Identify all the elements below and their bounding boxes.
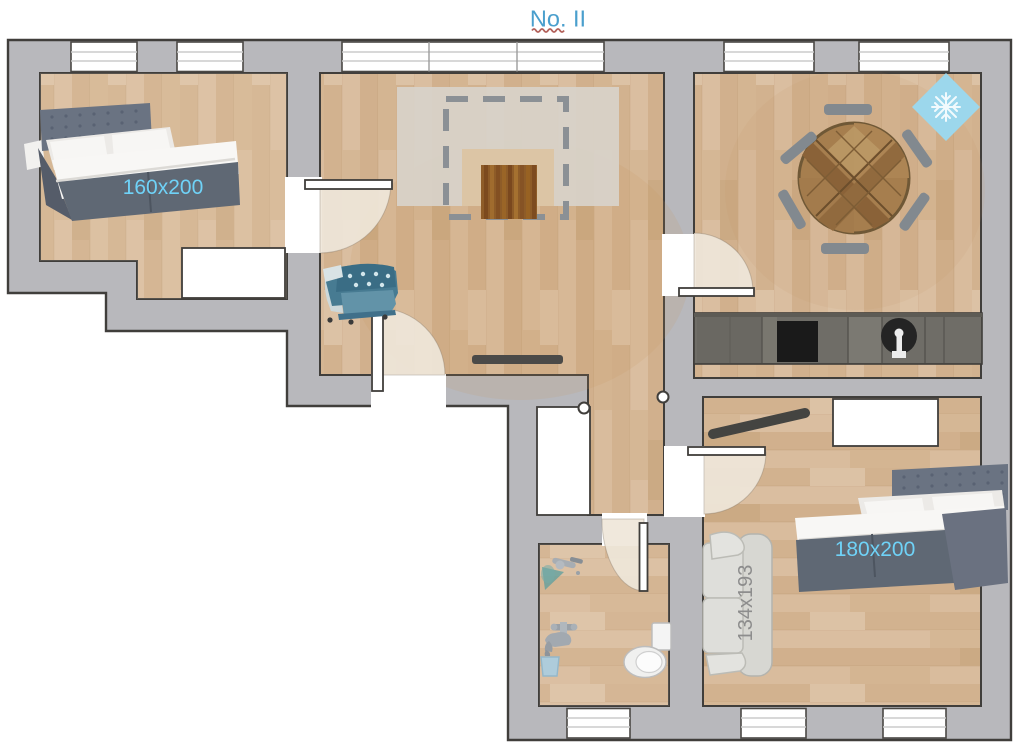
- svg-text:160x200: 160x200: [123, 176, 204, 199]
- svg-text:No. II: No. II: [530, 6, 586, 32]
- svg-text:180x200: 180x200: [835, 538, 916, 561]
- svg-text:134x193: 134x193: [735, 565, 757, 642]
